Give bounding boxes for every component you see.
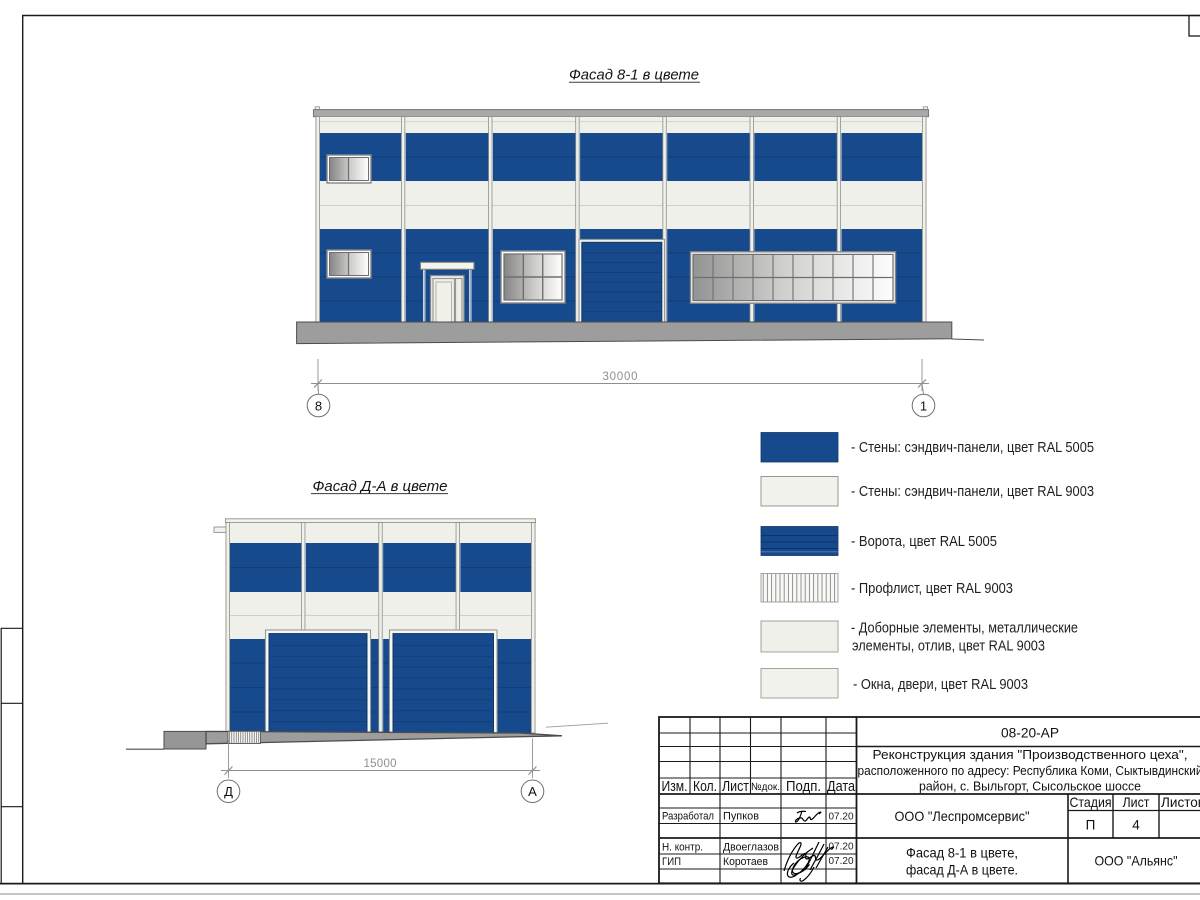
svg-text:8: 8 xyxy=(315,398,322,413)
svg-text:- Стены: сэндвич-панели, цвет: - Стены: сэндвич-панели, цвет RAL 9003 xyxy=(851,484,1094,500)
svg-text:- Ворота, цвет RAL 5005: - Ворота, цвет RAL 5005 xyxy=(851,534,997,550)
svg-text:07.20: 07.20 xyxy=(828,812,853,823)
svg-text:Коротаев: Коротаев xyxy=(723,856,768,868)
svg-text:08-20-АР: 08-20-АР xyxy=(1001,725,1059,741)
svg-text:район, с. Выльгорт, Сысольское: район, с. Выльгорт, Сысольское шоссе xyxy=(919,779,1141,794)
svg-text:ГИП: ГИП xyxy=(662,856,681,868)
svg-text:расположенного по адресу: Респ: расположенного по адресу: Республика Ком… xyxy=(858,763,1200,778)
svg-text:элементы, отлив, цвет RAL 9003: элементы, отлив, цвет RAL 9003 xyxy=(852,638,1045,654)
svg-text:Изм.: Изм. xyxy=(662,778,688,795)
svg-text:- Доборные элементы, металличе: - Доборные элементы, металлические xyxy=(851,620,1078,636)
svg-text:- Окна, двери, цвет RAL 9003: - Окна, двери, цвет RAL 9003 xyxy=(853,677,1028,693)
svg-text:Реконструкция здания "Производ: Реконструкция здания "Производственного … xyxy=(873,747,1188,762)
svg-text:Кол.: Кол. xyxy=(693,778,717,795)
svg-text:Разработал: Разработал xyxy=(662,811,714,823)
svg-text:4: 4 xyxy=(1132,818,1140,833)
svg-text:15000: 15000 xyxy=(364,758,397,770)
svg-text:фасад Д-А в цвете.: фасад Д-А в цвете. xyxy=(906,862,1018,878)
svg-text:Фасад 8-1 в цвете,: Фасад 8-1 в цвете, xyxy=(906,845,1018,861)
svg-text:№док.: №док. xyxy=(751,781,780,793)
svg-text:Двоеглазов: Двоеглазов xyxy=(723,842,779,854)
svg-text:Пупков: Пупков xyxy=(723,811,759,823)
svg-text:Подп.: Подп. xyxy=(786,778,821,795)
svg-text:Фасад Д-А в цвете: Фасад Д-А в цвете xyxy=(313,478,448,495)
svg-text:Н. контр.: Н. контр. xyxy=(662,842,703,854)
svg-text:- Профлист, цвет RAL 9003: - Профлист, цвет RAL 9003 xyxy=(851,581,1013,597)
svg-text:Фасад 8-1 в цвете: Фасад 8-1 в цвете xyxy=(569,67,699,84)
svg-text:1: 1 xyxy=(920,398,927,413)
svg-text:Д: Д xyxy=(224,784,233,799)
svg-text:Дата: Дата xyxy=(827,778,856,795)
svg-text:П: П xyxy=(1086,818,1096,833)
svg-text:ООО "Альянс": ООО "Альянс" xyxy=(1095,853,1178,869)
svg-text:07.20: 07.20 xyxy=(828,856,853,867)
svg-text:Лист: Лист xyxy=(1123,794,1151,810)
svg-text:ООО "Леспромсервис": ООО "Леспромсервис" xyxy=(895,808,1030,824)
svg-text:Листов: Листов xyxy=(1161,794,1200,810)
svg-text:- Стены: сэндвич-панели, цвет: - Стены: сэндвич-панели, цвет RAL 5005 xyxy=(851,440,1094,456)
svg-text:А: А xyxy=(528,784,537,799)
svg-text:30000: 30000 xyxy=(603,371,638,383)
svg-text:Лист: Лист xyxy=(722,778,749,795)
svg-text:Стадия: Стадия xyxy=(1070,794,1112,810)
